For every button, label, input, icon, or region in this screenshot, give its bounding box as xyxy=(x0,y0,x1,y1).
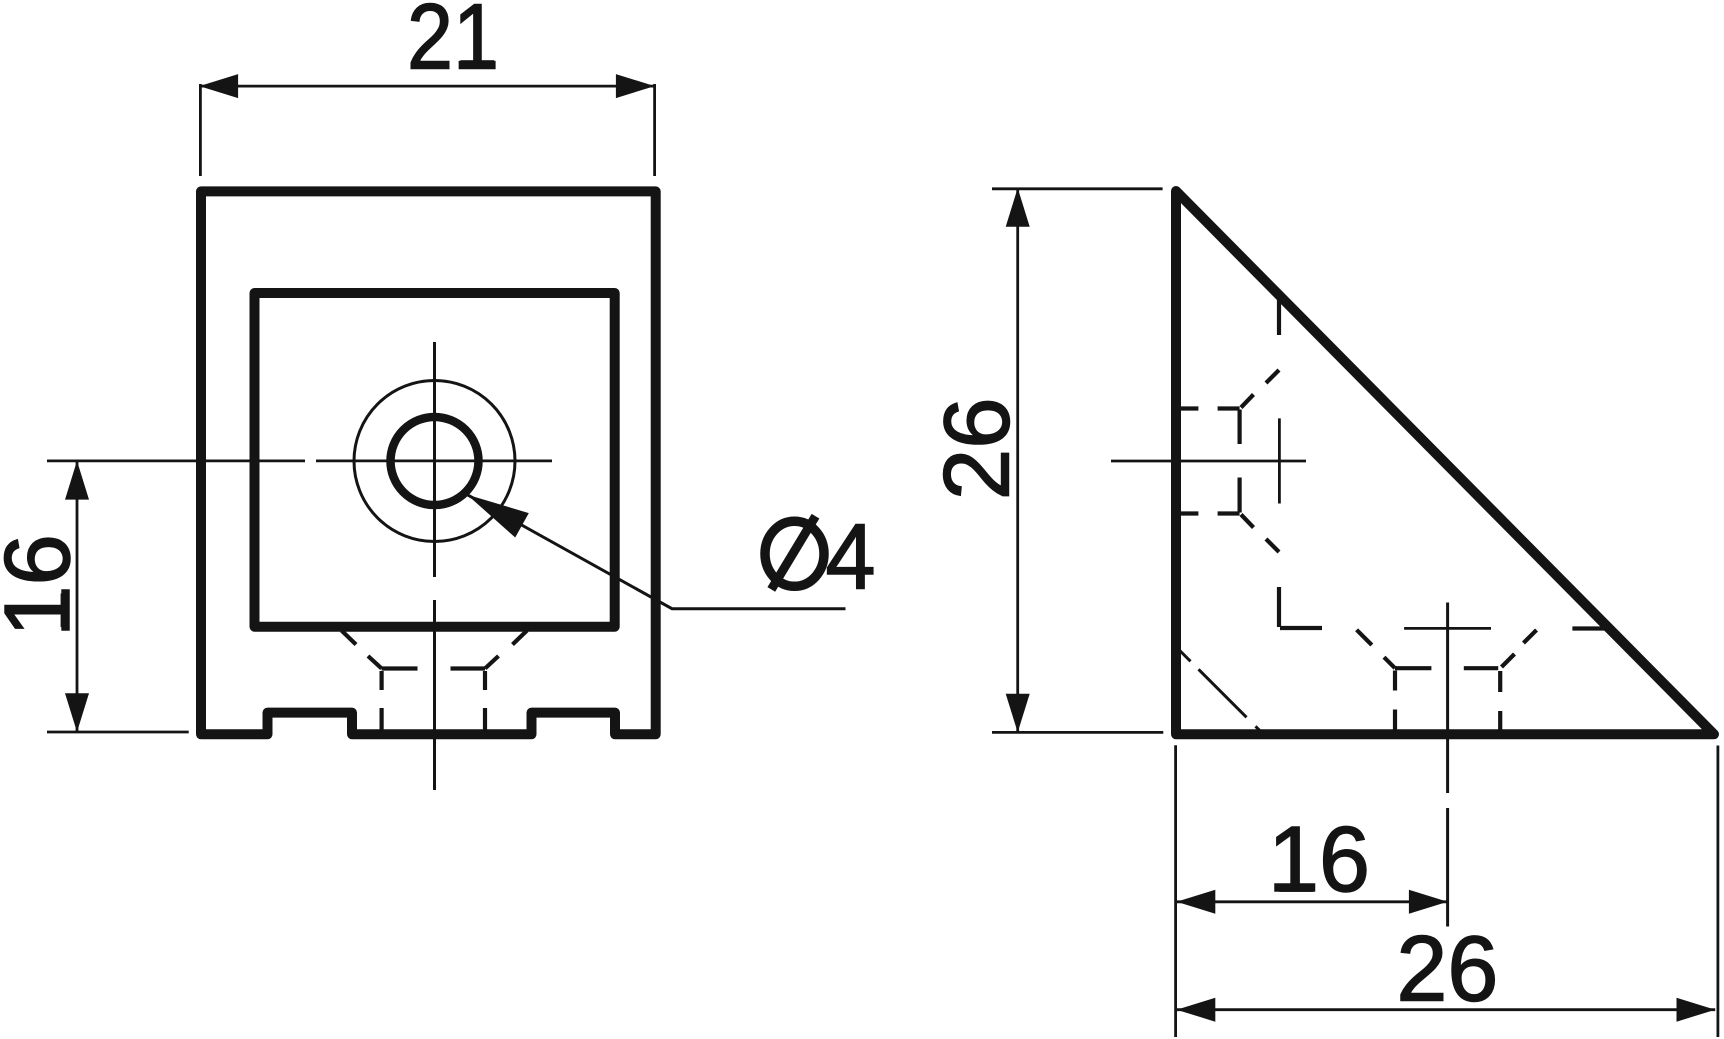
svg-text:26: 26 xyxy=(924,397,1028,500)
svg-text:4: 4 xyxy=(826,505,876,609)
svg-text:16: 16 xyxy=(0,534,89,637)
svg-text:26: 26 xyxy=(1396,917,1498,1021)
svg-text:16: 16 xyxy=(1268,807,1370,911)
svg-text:21: 21 xyxy=(407,0,499,89)
